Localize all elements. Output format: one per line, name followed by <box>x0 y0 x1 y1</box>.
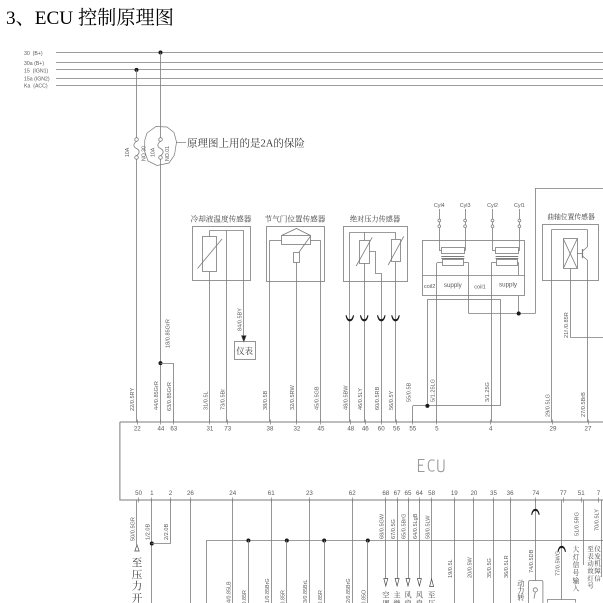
svg-text:63/0.85GrR: 63/0.85GrR <box>167 382 173 411</box>
svg-text:仪表: 仪表 <box>236 345 253 357</box>
svg-text:22/0.5RY: 22/0.5RY <box>130 388 136 411</box>
svg-text:coil1: coil1 <box>474 285 486 291</box>
svg-text:1: 1 <box>150 490 154 497</box>
svg-text:38: 38 <box>267 426 274 433</box>
svg-text:48/0.5BW: 48/0.5BW <box>344 385 350 410</box>
svg-text:supply: supply <box>499 282 518 289</box>
svg-text:19/0.5L: 19/0.5L <box>448 559 454 578</box>
svg-text:coil2: coil2 <box>424 284 436 290</box>
svg-text:55/0.5B: 55/0.5B <box>407 382 413 402</box>
svg-text:31: 31 <box>206 426 213 433</box>
svg-text:NO.01: NO.01 <box>165 146 171 161</box>
svg-text:19: 19 <box>451 490 458 497</box>
svg-text:64: 64 <box>416 490 423 497</box>
svg-text:10A: 10A <box>125 147 131 157</box>
svg-text:22: 22 <box>134 426 141 433</box>
svg-text:/0.85R: /0.85R <box>242 590 248 603</box>
svg-text:44: 44 <box>157 426 164 433</box>
svg-text:77/0.5WG: 77/0.5WG <box>555 551 561 576</box>
svg-text:20: 20 <box>470 490 477 497</box>
svg-text:24: 24 <box>229 490 236 497</box>
svg-text:55: 55 <box>409 426 416 433</box>
svg-text:Cyl4: Cyl4 <box>434 203 445 209</box>
svg-text:24/0.85LB: 24/0.85LB <box>226 581 232 603</box>
svg-text:2/2.0B: 2/2.0B <box>164 524 170 540</box>
svg-text:51: 51 <box>578 490 585 497</box>
svg-text:Cyl1: Cyl1 <box>514 203 525 209</box>
svg-text:21f /0.85R: 21f /0.85R <box>564 312 570 338</box>
svg-text:信: 信 <box>594 573 601 582</box>
svg-text:5: 5 <box>435 426 439 433</box>
svg-text:48: 48 <box>347 426 354 433</box>
svg-text:Ka (ACC): Ka (ACC) <box>24 84 48 90</box>
svg-text:23/0.85BrL: 23/0.85BrL <box>303 580 309 603</box>
svg-text:绝对压力传感器: 绝对压力传感器 <box>350 215 400 225</box>
svg-text:65: 65 <box>405 490 412 497</box>
svg-text:转: 转 <box>517 593 524 603</box>
svg-text:67: 67 <box>394 490 401 497</box>
svg-text:61: 61 <box>268 490 275 497</box>
svg-text:Cyl2: Cyl2 <box>487 203 498 209</box>
svg-text:68: 68 <box>382 490 389 497</box>
svg-text:18/0.85GrR: 18/0.85GrR <box>165 319 171 348</box>
svg-text:67/0.5G: 67/0.5G <box>391 519 397 539</box>
svg-text:56: 56 <box>393 426 400 433</box>
svg-text:46: 46 <box>362 426 369 433</box>
svg-text:开: 开 <box>132 591 143 603</box>
svg-text:15 (IGN1): 15 (IGN1) <box>24 68 48 74</box>
svg-text:3/1.25G: 3/1.25G <box>485 382 491 402</box>
svg-text:节气门位置传感器: 节气门位置传感器 <box>265 214 326 225</box>
svg-text:曲轴位置传感器: 曲轴位置传感器 <box>547 211 595 221</box>
svg-text:继: 继 <box>393 599 400 603</box>
svg-text:7: 7 <box>597 490 601 497</box>
svg-text:2: 2 <box>169 490 173 497</box>
svg-text:35/0.5G: 35/0.5G <box>487 558 493 578</box>
svg-text:73: 73 <box>224 426 231 433</box>
svg-text:50/0.5GR: 50/0.5GR <box>131 517 137 541</box>
svg-text:70/0.5LY: 70/0.5LY <box>594 509 600 531</box>
svg-text:30 (B+): 30 (B+) <box>24 51 43 57</box>
svg-text:调: 调 <box>382 599 389 603</box>
svg-text:4: 4 <box>489 426 493 433</box>
svg-text:5/1.25LG: 5/1.25LG <box>431 379 437 402</box>
svg-text:68/0.5GW: 68/0.5GW <box>380 513 386 539</box>
svg-text:60/0.5RB: 60/0.5RB <box>375 386 381 410</box>
svg-text:36/0.5LR: 36/0.5LR <box>504 555 510 578</box>
svg-text:10A: 10A <box>151 147 157 157</box>
svg-text:32/0.5RW: 32/0.5RW <box>290 385 296 410</box>
svg-text:/0.85R: /0.85R <box>318 590 324 603</box>
svg-text:62: 62 <box>349 490 356 497</box>
svg-text:1/2.0B: 1/2.0B <box>146 524 152 540</box>
svg-text:61/0.85BrG: 61/0.85BrG <box>265 578 271 603</box>
svg-text:23: 23 <box>306 490 313 497</box>
svg-text:62/0.85BrG: 62/0.85BrG <box>346 578 352 603</box>
svg-text:74/0.5DB: 74/0.5DB <box>529 549 535 573</box>
svg-text:入: 入 <box>573 583 580 593</box>
svg-text:31/0.5L: 31/0.5L <box>204 391 210 410</box>
svg-text:74: 74 <box>532 490 539 497</box>
svg-text:63: 63 <box>170 426 177 433</box>
svg-text:29/0.5LG: 29/0.5LG <box>545 394 551 417</box>
svg-text:56/0.5Y: 56/0.5Y <box>389 390 395 410</box>
svg-text:20/0.5W: 20/0.5W <box>468 556 474 578</box>
svg-text:77: 77 <box>560 490 567 497</box>
svg-text:号: 号 <box>587 581 594 590</box>
svg-text:26: 26 <box>187 490 194 497</box>
svg-text:3、ECU 控制原理图: 3、ECU 控制原理图 <box>6 3 174 30</box>
svg-text:58/0.5LW: 58/0.5LW <box>425 515 431 539</box>
svg-text:38/0.5B: 38/0.5B <box>263 390 269 410</box>
svg-text:压: 压 <box>428 599 435 603</box>
svg-text:36: 36 <box>507 490 514 497</box>
svg-text:29: 29 <box>550 426 557 433</box>
svg-text:15a (IGN2): 15a (IGN2) <box>24 77 50 83</box>
svg-text:46/0.5LY: 46/0.5LY <box>358 388 364 410</box>
svg-text:60: 60 <box>378 426 385 433</box>
svg-text:冷却液温度传感器: 冷却液温度传感器 <box>191 214 252 225</box>
svg-text:73/0.5Br: 73/0.5Br <box>221 389 227 410</box>
svg-text:30a (B+): 30a (B+) <box>24 61 44 67</box>
svg-text:64/0.5LgB: 64/0.5LgB <box>413 513 419 539</box>
svg-text:45/0.5GB: 45/0.5GB <box>314 386 320 410</box>
svg-text:27: 27 <box>585 426 592 433</box>
svg-text:32: 32 <box>293 426 300 433</box>
svg-text:58: 58 <box>428 490 435 497</box>
svg-text:51/0.5RG: 51/0.5RG <box>575 512 581 536</box>
svg-text:原理图上用的是2A的保险: 原理图上用的是2A的保险 <box>187 136 305 151</box>
svg-text:/0.85O: /0.85O <box>362 590 368 603</box>
svg-text:35: 35 <box>490 490 497 497</box>
svg-text:50: 50 <box>135 490 142 497</box>
svg-text:27/0.5BrB: 27/0.5BrB <box>581 392 587 417</box>
svg-text:扇: 扇 <box>404 599 411 603</box>
svg-text:/0.85R: /0.85R <box>281 590 287 603</box>
svg-text:45: 45 <box>318 426 325 433</box>
svg-text:65/0.5BrG: 65/0.5BrG <box>402 514 408 540</box>
svg-text:扇: 扇 <box>416 599 423 603</box>
svg-text:supply: supply <box>444 282 463 289</box>
svg-text:Cyl3: Cyl3 <box>460 203 471 209</box>
svg-text:84/0.5BY: 84/0.5BY <box>238 308 244 331</box>
svg-text:44/0.85GrR: 44/0.85GrR <box>154 381 160 410</box>
